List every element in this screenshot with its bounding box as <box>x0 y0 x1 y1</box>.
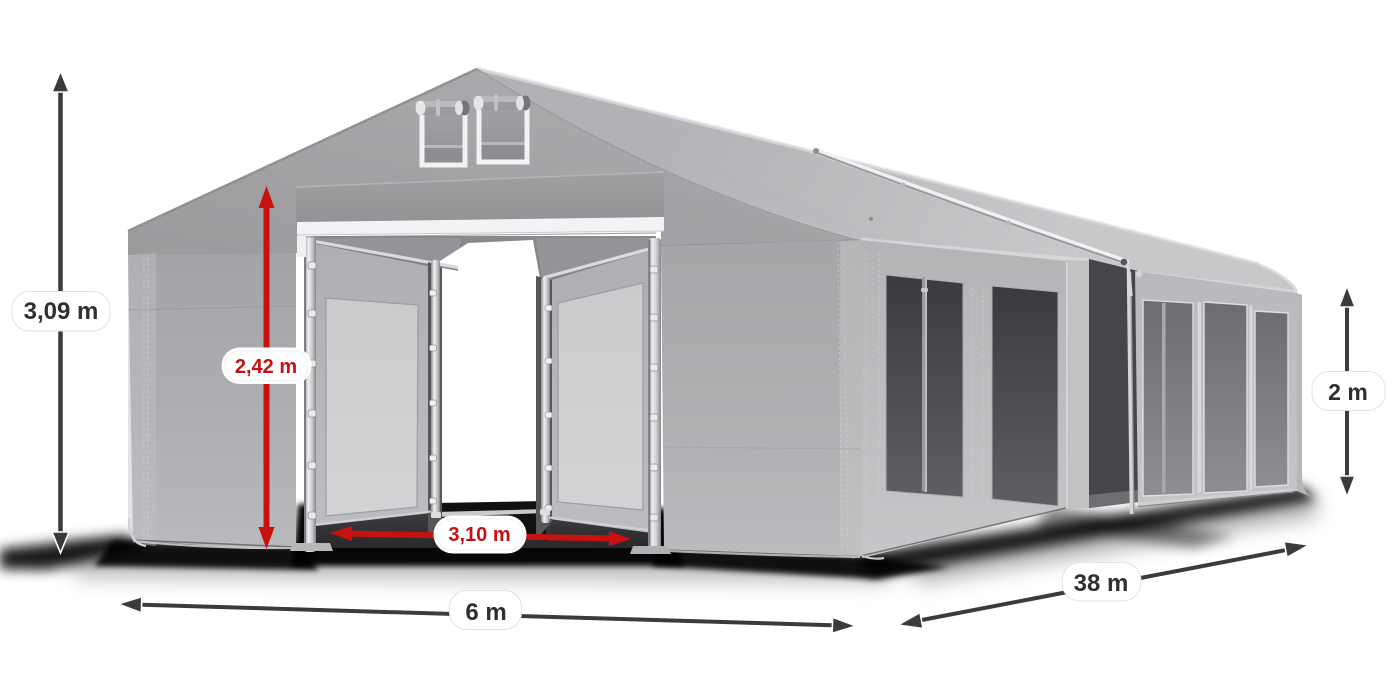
svg-text:6 m: 6 m <box>465 599 506 626</box>
svg-text:2,42 m: 2,42 m <box>235 356 297 378</box>
svg-text:3,10 m: 3,10 m <box>448 524 510 546</box>
svg-text:38 m: 38 m <box>1074 570 1129 597</box>
svg-text:3,09 m: 3,09 m <box>24 298 99 325</box>
svg-text:2 m: 2 m <box>1328 379 1368 405</box>
